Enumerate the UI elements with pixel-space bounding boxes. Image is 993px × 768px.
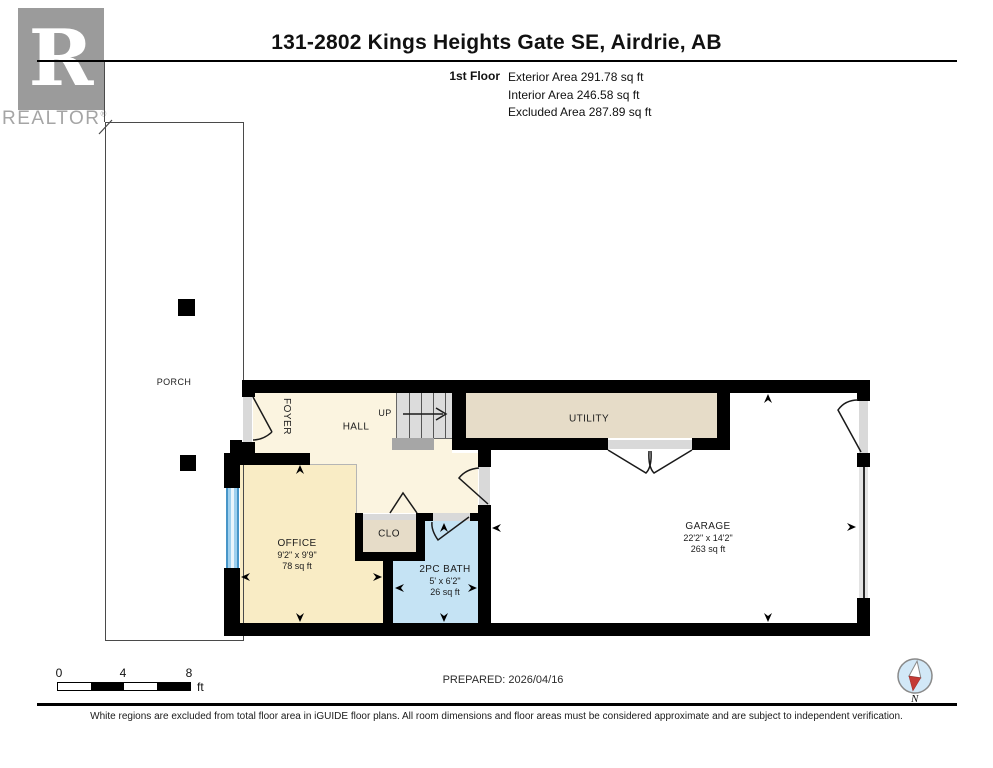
stairs-up-label: UP [378,408,391,418]
footer-divider [37,703,957,706]
garage-name: GARAGE [683,521,732,532]
hall-corridor-area [357,453,478,513]
floor-label: 1st Floor [395,69,500,83]
area-summary: Exterior Area 291.78 sq ft Interior Area… [508,69,651,122]
utility-door-right-swing [649,450,692,473]
wall-bath-top-right [470,513,479,521]
wall-garage-hall-upper [478,450,491,467]
garage-hall-door-opening [479,467,490,505]
hall-label: HALL [343,422,370,433]
garage-size: 263 sq ft [683,544,732,554]
scale-bar-segments [57,682,191,691]
garage-label: GARAGE 22'2" x 14'2" 263 sq ft [683,521,732,554]
foyer-door-opening [243,396,252,443]
exterior-area: Exterior Area 291.78 sq ft [508,69,651,87]
scale-unit: ft [197,680,204,694]
porch-edge-line [104,62,105,122]
room-boundary [356,465,357,513]
scale-bar: 0 4 8 ft [55,666,215,694]
garage-overhead-door-line [863,467,865,598]
dim-arrow-up [764,394,772,403]
compass-icon [896,657,934,695]
realtor-brand-text: REALTOR [2,108,101,129]
wall-office-left-upper [224,453,240,488]
stair-tread [421,391,422,438]
wall-bath-top-left [423,513,433,521]
office-size: 78 sq ft [277,561,316,571]
wall-utility-right [717,381,730,450]
compass-circle [896,657,934,695]
porch-post [180,455,196,471]
stair-tread [433,391,434,438]
dim-arrow-down [764,613,772,622]
wall-office-left-lower [224,568,240,624]
disclaimer-text: White regions are excluded from total fl… [0,711,993,722]
closet-label: CLO [378,529,400,540]
wall-utility-bottom-left [452,438,608,450]
wall-jog [230,440,242,454]
utility-door-opening [608,440,692,449]
realtor-logo-brand: REALTOR® [2,108,106,130]
compass-needle-north [909,660,923,678]
scale-tick-0: 0 [56,666,63,680]
utility-label: UTILITY [569,414,609,425]
title-divider [37,60,957,62]
closet-door-track [363,514,416,520]
interior-area: Interior Area 246.58 sq ft [508,87,651,105]
stairs [397,391,452,438]
office-dims: 9'2" x 9'9" [277,550,316,560]
porch-label: PORCH [157,377,192,387]
bath-label: 2PC BATH 5' x 6'2" 26 sq ft [419,564,470,597]
office-label: OFFICE 9'2" x 9'9" 78 sq ft [277,538,316,571]
compass-needle-south [907,676,921,692]
bath-name: 2PC BATH [419,564,470,575]
prepared-date: PREPARED: 2026/04/16 [443,674,564,686]
office-name: OFFICE [277,538,316,549]
scale-segment [124,683,157,690]
scale-segment [58,683,91,690]
office-area [357,561,383,623]
dim-arrow-left [492,524,501,532]
wall-right-top [857,380,870,401]
page-title: 131-2802 Kings Heights Gate SE, Airdrie,… [0,31,993,55]
wall-right-bottom [857,598,870,636]
garage-entry-door-opening [859,401,868,453]
stair-tread [445,391,446,438]
stair-landing [392,438,434,450]
stair-tread [409,391,410,438]
room-boundary [310,464,357,465]
scale-segment [157,683,190,690]
wall-closet-bottom [355,552,425,561]
utility-door-left-swing [608,450,651,473]
office-window [226,488,239,568]
scale-segment [91,683,124,690]
dim-arrow-right [847,523,856,531]
bath-door-opening [433,513,470,521]
wall-top [243,380,870,393]
foyer-label: FOYER [281,398,292,435]
bath-size: 26 sq ft [419,587,470,597]
bath-area [425,521,478,561]
scale-tick-4: 4 [120,666,127,680]
wall-bottom [224,623,870,636]
wall-right-mid [857,453,870,467]
floorplan-page: R REALTOR® 131-2802 Kings Heights Gate S… [0,0,993,768]
realtor-logo: R [18,8,104,110]
excluded-area: Excluded Area 287.89 sq ft [508,104,651,122]
bath-dims: 5' x 6'2" [419,576,470,586]
wall-garage-hall-lower [478,505,491,623]
garage-entry-door-swing [838,400,861,452]
wall-office-bath [383,561,393,623]
porch-post [178,299,195,316]
wall-foyer-left-upper [242,380,255,397]
garage-dims: 22'2" x 14'2" [683,533,732,543]
scale-tick-8: 8 [186,666,193,680]
